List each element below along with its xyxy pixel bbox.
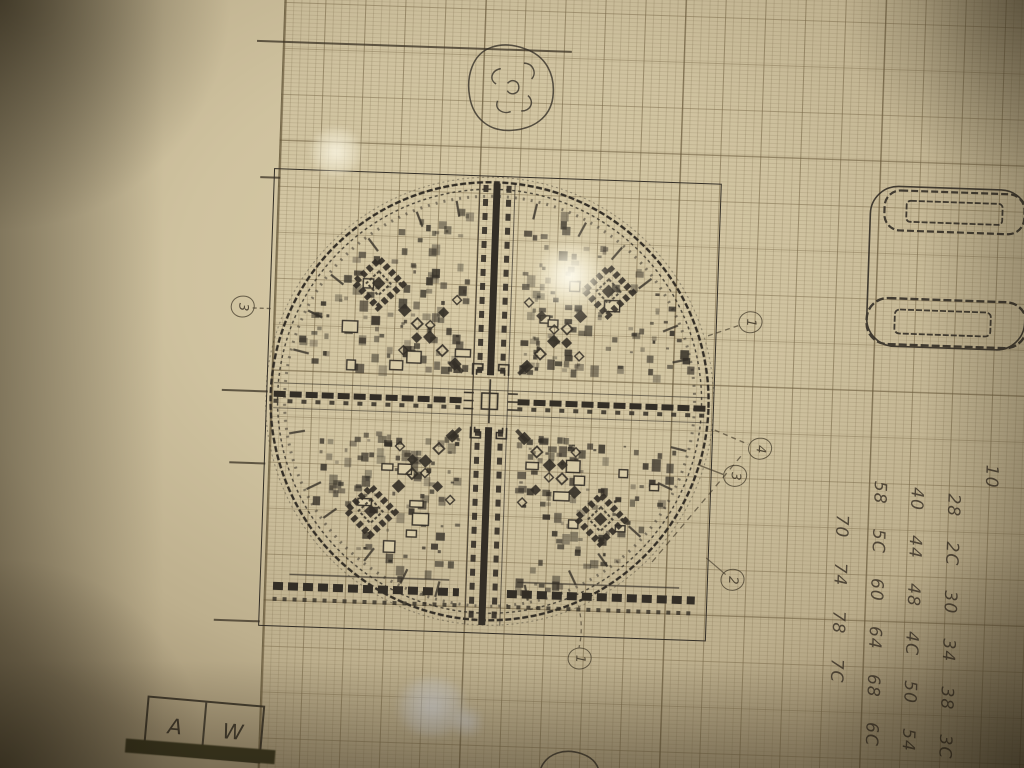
design-cross-bands xyxy=(266,176,715,633)
circled-note-left: 3 xyxy=(230,295,255,318)
graph-paper-sheet: 3 1 4 3 2 1 10 28 2C 30 34 38 3C 40 44 4… xyxy=(0,0,1024,768)
photo-of-graph-paper-design: 3 1 4 3 2 1 10 28 2C 30 34 38 3C 40 44 4… xyxy=(0,0,1024,768)
tick-line-lower xyxy=(229,461,265,464)
thumbnail-doodle-sketch xyxy=(457,37,564,141)
circular-sprite-design xyxy=(258,168,724,643)
tick-line-square-bottom xyxy=(214,619,260,622)
bottom-arc-sketch xyxy=(539,748,604,768)
capsule-sketch xyxy=(859,177,1024,361)
sprite-design-svg xyxy=(258,168,724,643)
tick-line-midline xyxy=(222,389,268,392)
hex-address-table: 10 28 2C 30 34 38 3C 40 44 48 4C 50 54 5… xyxy=(814,459,1009,765)
